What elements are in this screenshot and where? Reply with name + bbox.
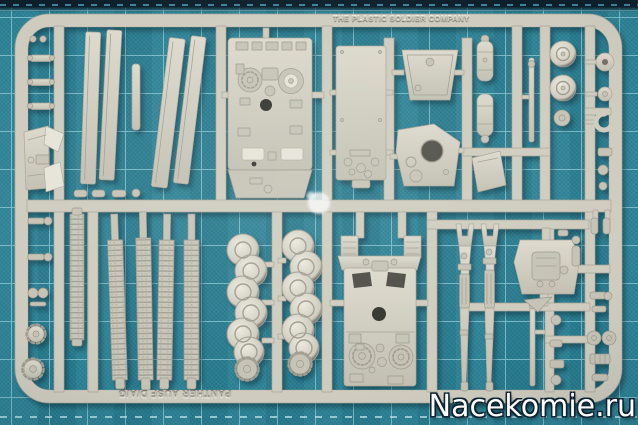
- watermark-text: Nacekomie.ru: [429, 389, 636, 424]
- photo-vignette: [0, 0, 638, 425]
- photo-model-sprue: THE PLASTIC SOLDIER COMPANY PANTHER AUSF…: [0, 0, 638, 425]
